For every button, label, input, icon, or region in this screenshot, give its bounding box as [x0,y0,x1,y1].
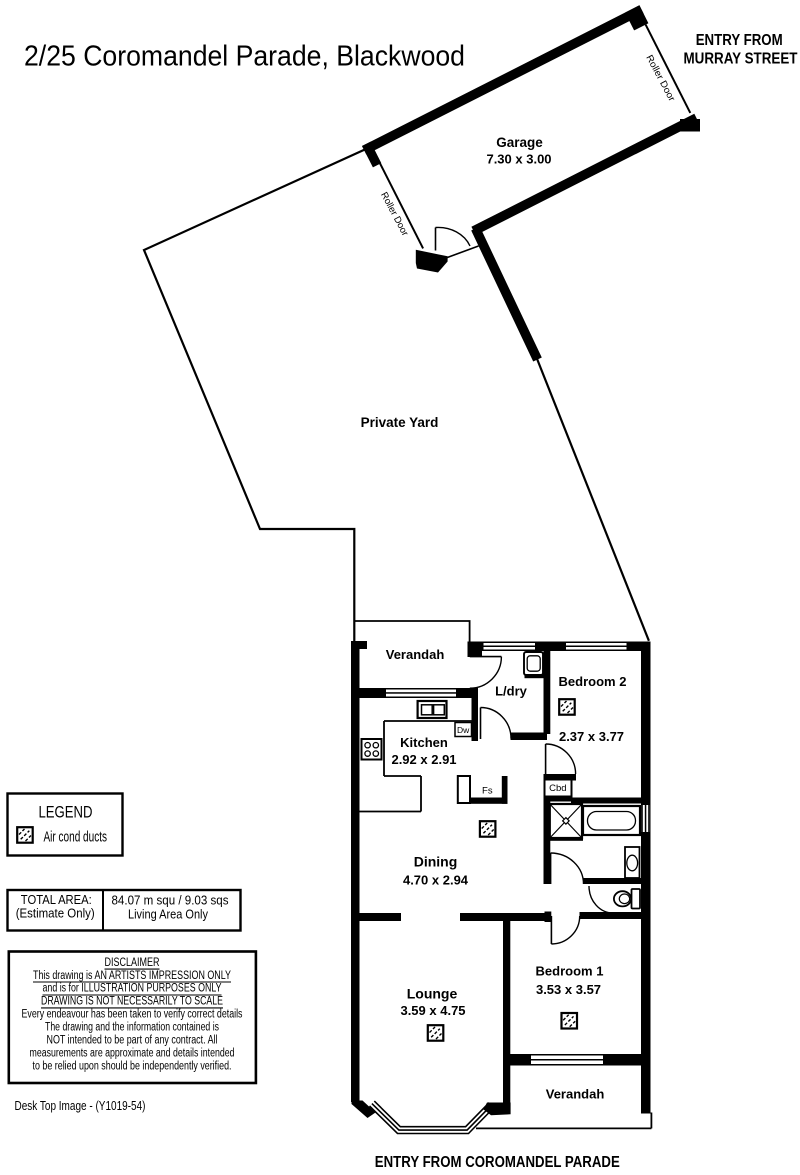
svg-text:DRAWING IS NOT NECESSARILY TO: DRAWING IS NOT NECESSARILY TO SCALE [41,996,223,1008]
svg-text:4.70 x 2.94: 4.70 x 2.94 [403,873,469,888]
svg-text:2/25 Coromandel Parade, Blackw: 2/25 Coromandel Parade, Blackwood [24,41,465,73]
svg-text:3.59 x 4.75: 3.59 x 4.75 [400,1003,465,1018]
svg-text:Dining: Dining [414,854,458,870]
svg-text:Desk Top Image - (Y1019-54): Desk Top Image - (Y1019-54) [15,1098,146,1113]
svg-text:Garage: Garage [496,135,543,150]
svg-text:Dw: Dw [457,725,470,735]
svg-text:Cbd: Cbd [549,783,566,794]
svg-text:2.92 x 2.91: 2.92 x 2.91 [391,752,456,767]
svg-text:Fs: Fs [482,786,493,797]
svg-text:Verandah: Verandah [386,647,445,662]
svg-text:The drawing and the informatio: The drawing and the information containe… [45,1022,219,1034]
svg-text:Living Area Only: Living Area Only [128,907,209,921]
svg-text:Bedroom 2: Bedroom 2 [559,674,627,689]
svg-text:measurements are approximate a: measurements are approximate and details… [30,1048,235,1060]
svg-text:Air cond ducts: Air cond ducts [44,829,108,846]
svg-text:(Estimate Only): (Estimate Only) [16,907,95,921]
svg-text:NOT intended to be part of any: NOT intended to be part of any contract.… [47,1035,218,1047]
svg-text:L/dry: L/dry [495,684,528,699]
svg-text:ENTRY FROM COROMANDEL PARADE: ENTRY FROM COROMANDEL PARADE [375,1154,620,1171]
svg-text:7.30 x 3.00: 7.30 x 3.00 [486,152,551,167]
svg-text:DISCLAIMER: DISCLAIMER [105,957,160,969]
svg-text:3.53 x 3.57: 3.53 x 3.57 [536,982,601,997]
svg-text:2.37 x 3.77: 2.37 x 3.77 [559,729,624,744]
svg-text:Private Yard: Private Yard [361,415,439,430]
svg-text:Bedroom 1: Bedroom 1 [536,964,604,979]
svg-text:Verandah: Verandah [546,1087,605,1102]
svg-text:This drawing is AN ARTISTS IMP: This drawing is AN ARTISTS IMPRESSION ON… [33,970,231,982]
svg-text:and is for ILLUSTRATION PURPOS: and is for ILLUSTRATION PURPOSES ONLY [43,983,222,995]
svg-text:ENTRY FROM: ENTRY FROM [696,32,783,49]
svg-text:to be relied upon should be in: to be relied upon should be independentl… [33,1060,232,1072]
svg-text:Kitchen: Kitchen [400,735,448,750]
svg-text:Lounge: Lounge [407,986,458,1002]
svg-text:LEGEND: LEGEND [39,802,93,821]
svg-text:MURRAY STREET: MURRAY STREET [684,50,798,67]
svg-text:84.07 m squ / 9.03 sqs: 84.07 m squ / 9.03 sqs [112,893,229,907]
svg-text:Every endeavour has been taken: Every endeavour has been taken to verify… [22,1009,243,1021]
svg-text:TOTAL AREA:: TOTAL AREA: [21,893,92,907]
